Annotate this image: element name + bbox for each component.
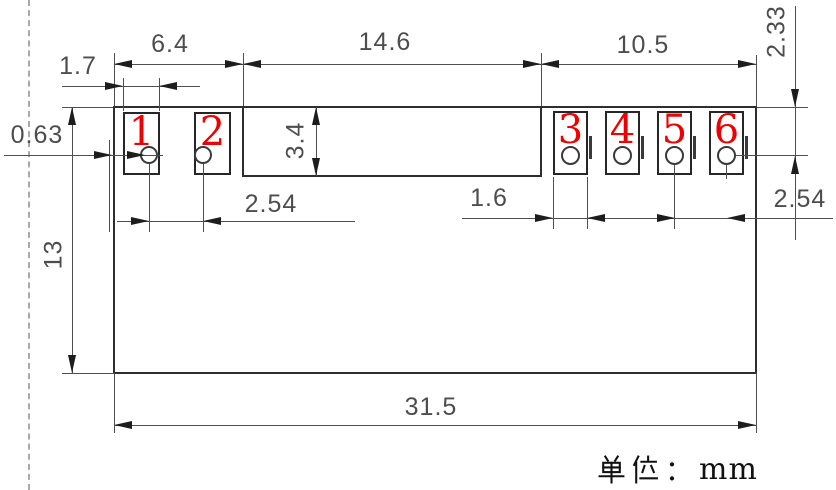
- dim-label-1.7: 1.7: [58, 54, 98, 79]
- arrowhead-left: [159, 82, 177, 90]
- arrowhead-left: [587, 214, 605, 222]
- arrowhead-right: [105, 82, 123, 90]
- top-dimension-line: [114, 64, 756, 65]
- body-bottom-edge: [114, 372, 756, 374]
- arrowhead-right: [225, 60, 243, 68]
- arrowhead-up: [68, 107, 76, 125]
- extension-line: [123, 78, 124, 111]
- pin-number-2: 2: [198, 114, 227, 150]
- body-right-edge: [755, 106, 757, 373]
- pin-number-4: 4: [608, 112, 637, 148]
- dim-label-13: 13: [42, 233, 67, 277]
- dim-line-31.5: [114, 425, 756, 426]
- pin-number-6: 6: [712, 112, 741, 148]
- arrowhead-down: [68, 355, 76, 373]
- arrowhead-right: [131, 217, 149, 225]
- extension-line: [553, 177, 554, 229]
- arrowhead-up: [791, 156, 799, 174]
- notch-left-edge: [242, 106, 244, 176]
- arrowhead-left: [203, 217, 221, 225]
- notch-bottom-edge: [242, 175, 542, 177]
- arrowhead-left: [541, 60, 559, 68]
- dim-label-3.4: 3.4: [284, 113, 309, 169]
- pin-stub: [589, 136, 592, 159]
- unit-mm: mm: [699, 452, 758, 487]
- pin-stub: [693, 136, 696, 159]
- arrowhead-down: [791, 89, 799, 107]
- notch-right-edge: [540, 106, 542, 176]
- arrowhead-right: [523, 60, 541, 68]
- arrowhead-left: [114, 421, 132, 429]
- dim-label-10.5: 10.5: [613, 33, 673, 58]
- pin-number-5: 5: [660, 112, 689, 148]
- dim-line-2.54-left: [117, 221, 355, 222]
- pin-stub: [641, 136, 644, 159]
- top-edge-extension-right: [756, 107, 808, 108]
- arrowhead-right: [127, 151, 145, 159]
- arrowhead-right: [738, 421, 756, 429]
- dim-line-2.33: [795, 6, 796, 240]
- dim-label-0.63: 0.63: [8, 123, 66, 148]
- hanzi-wei-glyph: [630, 454, 659, 484]
- pin-number-1: 1: [127, 114, 156, 150]
- right-edge-extension-bottom: [756, 373, 757, 433]
- body-top-edge: [114, 106, 756, 108]
- arrowhead-right: [657, 214, 675, 222]
- dim-label-6.4: 6.4: [144, 32, 196, 57]
- unit-colon: ：: [665, 449, 693, 489]
- arrowhead-left: [727, 214, 745, 222]
- unit-label: ： mm: [597, 449, 758, 489]
- dim-label-14.6: 14.6: [352, 30, 418, 55]
- arrowhead-right: [738, 60, 756, 68]
- dim-label-1.6: 1.6: [468, 186, 510, 211]
- bottom-edge-extension-left: [62, 373, 114, 374]
- arrowhead-right: [94, 151, 112, 159]
- dim-label-2.54-left: 2.54: [242, 192, 300, 217]
- arrowhead-left: [243, 60, 261, 68]
- arrowhead-right: [535, 214, 553, 222]
- dim-label-2.33: 2.33: [765, 3, 790, 61]
- dim-line-1.7: [62, 86, 200, 87]
- body-left-edge: [113, 106, 115, 373]
- arrowhead-left: [114, 60, 132, 68]
- arrowhead-up: [312, 107, 320, 125]
- dim-label-2.54-right: 2.54: [771, 187, 829, 212]
- pin-number-3: 3: [556, 112, 585, 148]
- engineering-drawing-canvas: 1 2 3 4 5 6 6.4 14.6 10.5 1.7 0.63 3.4 1…: [0, 0, 836, 490]
- right-edge-extension-top: [756, 55, 757, 107]
- dim-label-31.5: 31.5: [402, 395, 460, 420]
- dim-line-right-row: [462, 218, 833, 219]
- hanzi-dan-glyph: [597, 454, 626, 484]
- arrowhead-down: [312, 158, 320, 176]
- dim-line-13: [72, 107, 73, 373]
- datum-dashed-line: [28, 0, 30, 490]
